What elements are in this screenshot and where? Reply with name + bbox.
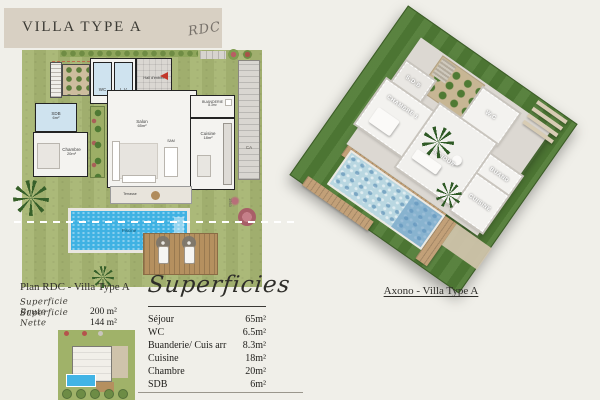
row-value: 6m² xyxy=(250,378,266,391)
ca-corridor: CA xyxy=(238,60,260,180)
thumb-path xyxy=(112,346,128,378)
thumb-pool xyxy=(66,374,96,387)
tree-icon xyxy=(62,389,72,399)
row-value: 20m² xyxy=(245,365,266,378)
paver-path xyxy=(200,51,226,59)
room-sdb: SDB 6m² xyxy=(35,103,77,132)
tree-icon xyxy=(90,389,100,399)
superficies-title-underline xyxy=(148,306,266,307)
outdoor-table xyxy=(151,191,160,200)
rug xyxy=(116,143,158,179)
sdb-area: 6m² xyxy=(36,116,76,121)
row-label: Buanderie/ Cuis arr xyxy=(148,339,226,352)
flower-dot xyxy=(98,331,103,336)
site-plan-thumbnail xyxy=(58,330,135,400)
page: VILLA TYPE A RDC WC L.V Hall d'entrée xyxy=(0,0,600,400)
row-value: 18m² xyxy=(245,352,266,365)
title-block: VILLA TYPE A RDC xyxy=(4,8,222,48)
row-label: Cuisine xyxy=(148,352,179,365)
section-dashed-line xyxy=(14,221,296,223)
chambre-area: 20m² xyxy=(56,152,87,157)
ca-label: CA xyxy=(239,145,259,150)
flower-dot xyxy=(82,331,87,336)
sun-lounger xyxy=(158,246,169,264)
row-label: Chambre xyxy=(148,365,185,378)
dimension-text: 1563 xyxy=(228,198,233,207)
row-label: SDB xyxy=(148,378,167,391)
table-row: Cuisine18m² xyxy=(148,352,266,365)
tree-icon xyxy=(118,389,128,399)
kitchen-island xyxy=(197,155,211,177)
table-row: Buanderie/ Cuis arr8.3m² xyxy=(148,339,266,352)
superficies-title: Superficies xyxy=(147,272,270,298)
sam-label: SAM xyxy=(160,139,182,143)
buanderie-area: 8.3m² xyxy=(191,104,234,108)
flower-dot xyxy=(64,331,69,336)
tree-icon xyxy=(76,389,86,399)
table-row: Chambre20m² xyxy=(148,365,266,378)
superficie-nette-value: 144 m² xyxy=(90,318,117,328)
row-label: WC xyxy=(148,326,164,339)
room-chambre: Chambre 20m² xyxy=(33,132,88,177)
cuisine-area: 18m² xyxy=(191,136,225,141)
superficies-table: Séjour65m² WC6.5m² Buanderie/ Cuis arr8.… xyxy=(148,313,266,391)
axono-caption: Axono - Villa Type A xyxy=(356,285,506,297)
plan-2d-rdc: WC L.V Hall d'entrée SDB 6m² Chambre 20m… xyxy=(22,50,262,287)
room-salon: Salon 65m² SAM xyxy=(107,90,197,188)
flower-bush xyxy=(228,49,239,60)
cuisine-3d-label: CUISINE xyxy=(463,190,496,216)
table-row: Séjour65m² xyxy=(148,313,266,326)
sun-lounger xyxy=(184,246,195,264)
page-title: VILLA TYPE A xyxy=(22,19,143,36)
superficie-nette: Superficie Nette144 m² xyxy=(20,308,117,319)
superficie-nette-label: Superficie Nette xyxy=(20,307,90,328)
sofa xyxy=(112,141,120,181)
terrasse-label: Terrasse xyxy=(113,192,147,196)
tree-icon xyxy=(104,389,114,399)
sofa xyxy=(122,175,156,183)
divider-line xyxy=(138,392,303,393)
palm-tree-icon xyxy=(13,180,49,216)
terrace: Terrasse xyxy=(110,186,192,204)
row-value: 8.3m² xyxy=(243,339,266,352)
exterior-stairs xyxy=(50,62,62,98)
superficie-brute: Superficie Brute200 m² xyxy=(20,297,117,308)
entrance-arrow-icon xyxy=(160,72,168,80)
table-row: WC6.5m² xyxy=(148,326,266,339)
plan-caption: Plan RDC - Villa Type A xyxy=(20,281,130,293)
planted-patio xyxy=(62,64,90,96)
handwritten-rdc-annotation: RDC xyxy=(187,19,222,39)
room-cuisine: Cuisine 18m² xyxy=(190,118,235,190)
axono-3d-view: W.C S.D.B CHAMBRE 1 SEJOUR BUAND CUISINE xyxy=(289,5,577,293)
row-label: Séjour xyxy=(148,313,174,326)
row-value: 65m² xyxy=(245,313,266,326)
flower-bush xyxy=(238,208,256,226)
table-row: SDB6m² xyxy=(148,378,266,391)
wc-3d-label: W.C xyxy=(472,101,510,130)
dining-table xyxy=(164,147,178,177)
row-value: 6.5m² xyxy=(243,326,266,339)
pool-deck xyxy=(143,233,218,275)
planted-border xyxy=(90,106,105,178)
hedge-strip xyxy=(60,50,198,57)
room-buanderie: BUANDERIE 8.3m² xyxy=(190,95,235,118)
flower-bush xyxy=(243,50,252,59)
salon-area: 65m² xyxy=(122,124,162,129)
bed-3d xyxy=(368,107,400,137)
